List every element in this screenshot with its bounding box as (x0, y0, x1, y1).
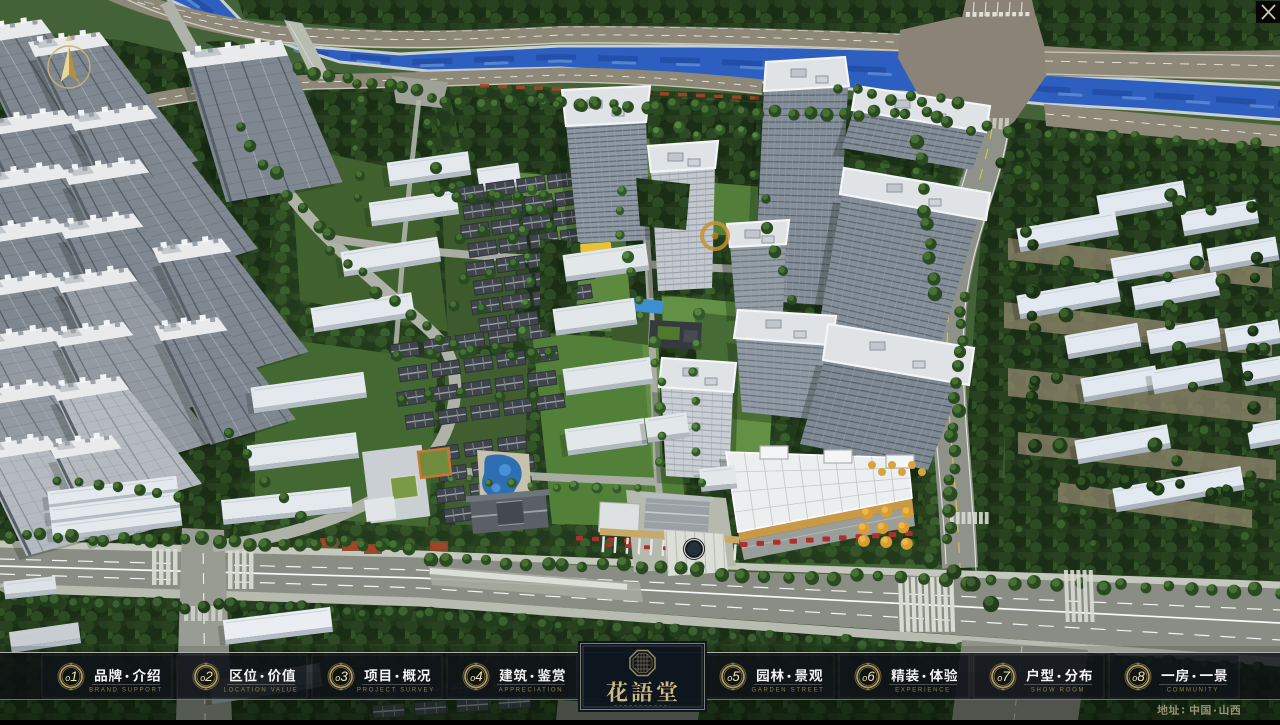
svg-text:BRAND SUPPORT: BRAND SUPPORT (89, 688, 163, 694)
svg-text:APPRECIATION: APPRECIATION (499, 688, 564, 694)
svg-text:COMMUNITY: COMMUNITY (1167, 688, 1219, 694)
svg-text:EXPERIENCE: EXPERIENCE (895, 688, 951, 694)
svg-text:GARDEN STREET: GARDEN STREET (751, 688, 824, 694)
svg-text:PROJECT SURVEY: PROJECT SURVEY (357, 688, 435, 694)
svg-text:LOCATION VALUE: LOCATION VALUE (224, 688, 299, 694)
svg-text:SHOW ROOM: SHOW ROOM (1031, 688, 1085, 694)
